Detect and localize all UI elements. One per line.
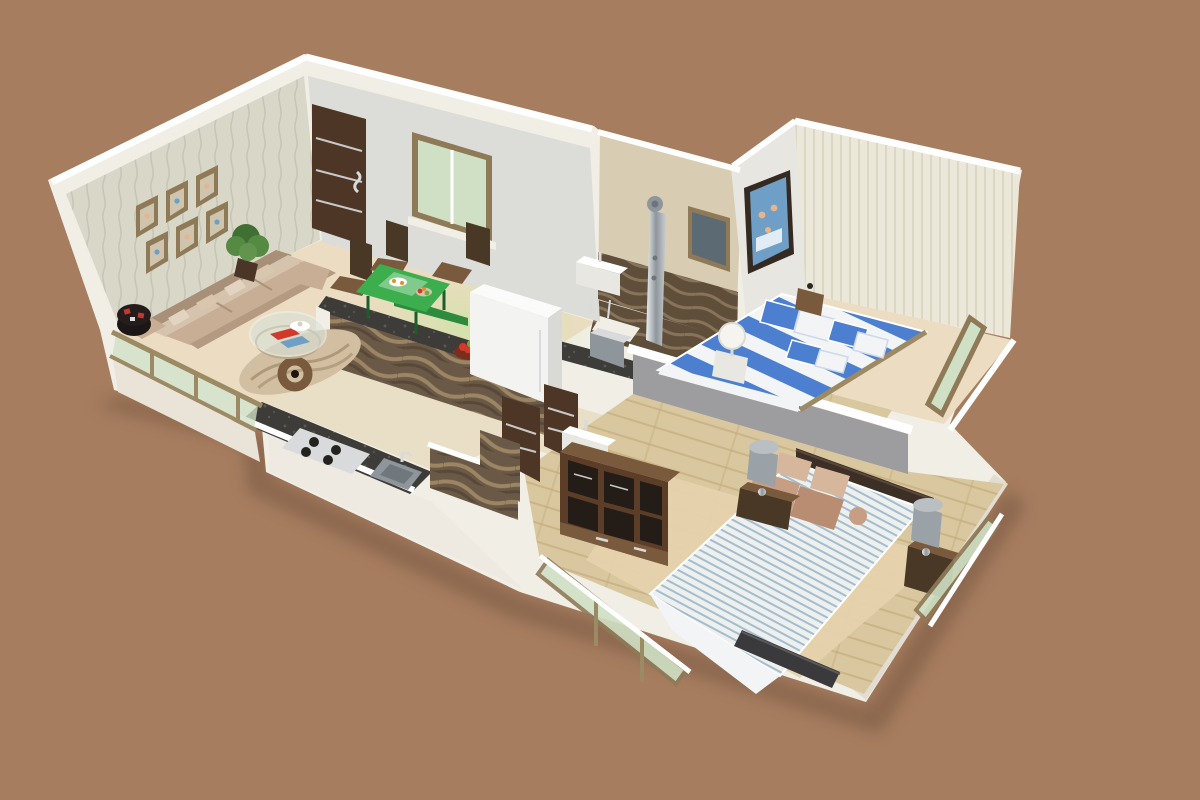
floorplan-canvas: Isometric 3D rendered floor plan of a tw… xyxy=(0,0,1200,800)
entrance-door xyxy=(312,104,366,246)
round-patterned-pouf xyxy=(117,304,151,336)
glass-coffee-table xyxy=(250,312,326,358)
juice-tray xyxy=(389,278,407,287)
curved-wood-side-table xyxy=(282,361,308,387)
alarm-clock-icon xyxy=(807,283,813,289)
bolster-pillow xyxy=(849,507,867,525)
floorplan-render: Isometric 3D rendered floor plan of a tw… xyxy=(0,0,1200,800)
